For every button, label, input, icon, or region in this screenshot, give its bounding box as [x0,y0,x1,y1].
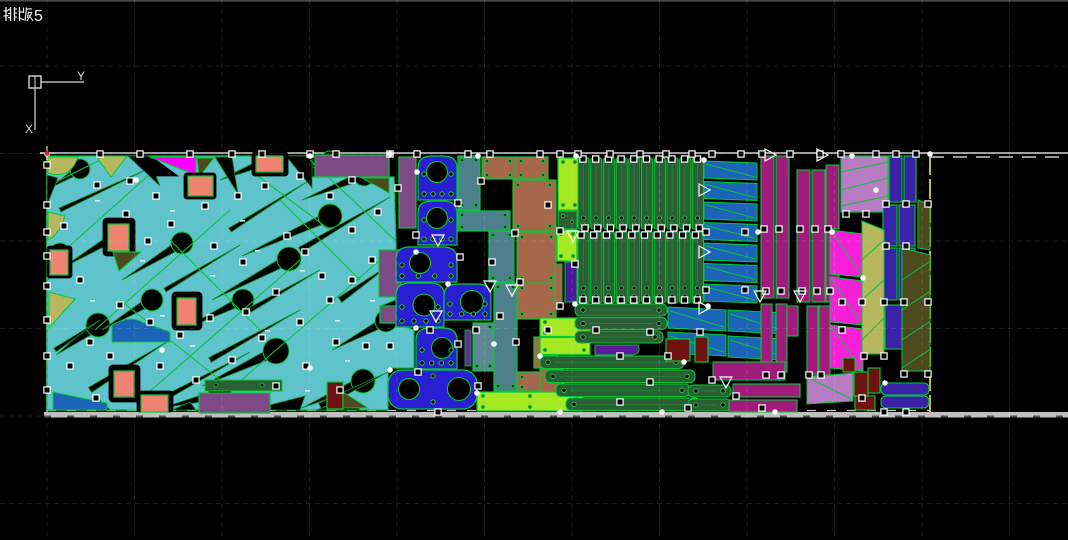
svg-text:5: 5 [34,8,43,25]
svg-text:Y: Y [77,69,85,83]
svg-text:X: X [25,122,33,136]
